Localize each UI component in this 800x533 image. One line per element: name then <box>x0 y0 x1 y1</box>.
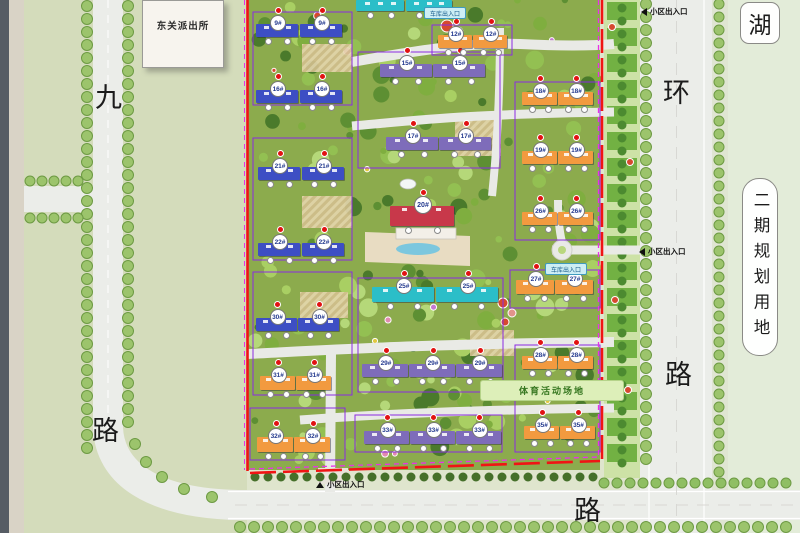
tree-icon <box>641 389 652 400</box>
location-pin-icon <box>321 226 328 233</box>
roof-detail <box>283 439 288 442</box>
tree-icon <box>641 90 652 101</box>
tree-icon <box>714 428 724 438</box>
tree-icon <box>123 53 134 64</box>
tree-icon <box>82 326 93 337</box>
tree-icon <box>468 7 484 23</box>
tree-icon <box>641 415 652 426</box>
tree-icon <box>319 522 330 533</box>
building-number-label: 28# <box>533 347 549 363</box>
unit-number-dot <box>328 104 335 111</box>
roof-detail <box>436 208 441 211</box>
tree-icon <box>716 478 726 488</box>
unit-number-dot <box>421 151 428 158</box>
tree-icon <box>37 213 47 223</box>
tree-icon <box>711 522 722 533</box>
tree-icon <box>714 350 724 360</box>
tree-icon <box>641 155 652 166</box>
roof-detail <box>302 378 307 381</box>
roof-detail <box>286 320 291 323</box>
building-number-label: 30# <box>270 309 286 325</box>
unit-number-dot <box>545 165 552 172</box>
tree-icon <box>690 478 700 488</box>
tree-icon <box>725 522 736 533</box>
tree-icon <box>382 195 393 206</box>
tree-icon <box>485 473 494 482</box>
tree-icon <box>298 122 306 130</box>
tree-icon <box>123 170 134 181</box>
tree-icon <box>456 208 473 225</box>
tree-icon <box>340 319 350 329</box>
tree-icon <box>618 329 627 338</box>
tree-icon <box>123 313 134 324</box>
tree-icon <box>347 522 358 533</box>
tree-icon <box>82 92 93 103</box>
roof-detail <box>266 169 271 172</box>
tree-icon <box>618 69 627 78</box>
building-number-label: 29# <box>378 355 394 371</box>
tree-icon <box>302 72 315 85</box>
tree-icon <box>305 522 316 533</box>
tree-icon <box>524 473 533 482</box>
roof-detail <box>417 366 422 369</box>
road-label-jiu: 九 <box>95 85 122 112</box>
tree-icon <box>82 235 93 246</box>
roof-detail <box>447 289 452 292</box>
tree-icon <box>618 17 627 26</box>
tree-icon <box>641 77 652 88</box>
tree-icon <box>248 334 262 348</box>
tree-icon <box>714 207 724 217</box>
tree-icon <box>714 51 724 61</box>
tree-icon <box>333 522 344 533</box>
tree-icon <box>359 382 371 394</box>
entrance-marker-s: 小区出入口 <box>316 479 365 490</box>
roof-detail <box>476 139 481 142</box>
unit-number-dot <box>319 391 326 398</box>
tree-icon <box>123 40 134 51</box>
tree-icon <box>618 108 627 117</box>
unit-number-dot <box>393 378 400 385</box>
tree-icon <box>641 181 652 192</box>
tree-icon <box>73 176 83 186</box>
tree-icon <box>641 376 652 387</box>
tree-icon <box>651 478 661 488</box>
roof-detail <box>365 2 370 5</box>
roof-detail <box>442 433 447 436</box>
tree-icon <box>625 478 635 488</box>
tree-icon <box>618 95 627 104</box>
roof-detail <box>320 439 325 442</box>
building-number-label: 30# <box>312 309 328 325</box>
tree-icon <box>82 157 93 168</box>
master-plan-map: 9#9#16#16#21#21#22#22#30#30#31#31#32#32#… <box>0 0 800 533</box>
unit-number-dot <box>545 226 552 233</box>
location-pin-icon <box>275 73 282 80</box>
tree-icon <box>497 19 505 27</box>
tree-icon <box>82 287 93 298</box>
roof-detail <box>464 433 469 436</box>
tree-icon <box>714 337 724 347</box>
tree-icon <box>82 352 93 363</box>
tree-icon <box>618 290 627 299</box>
tree-icon <box>408 27 420 39</box>
tree-icon <box>431 522 442 533</box>
tree-icon <box>82 404 93 415</box>
tree-icon <box>61 213 71 223</box>
tree-icon <box>618 433 627 442</box>
building-number-label: 19# <box>569 142 585 158</box>
tree-icon <box>714 285 724 295</box>
tree-icon <box>641 129 652 140</box>
tree-icon <box>123 1 134 12</box>
tree-icon <box>471 198 479 206</box>
building-number-label: 12# <box>448 26 464 42</box>
unit-number-dot <box>330 181 337 188</box>
tree-icon <box>472 473 481 482</box>
tree-icon <box>781 478 791 488</box>
tree-icon <box>714 389 724 399</box>
roof-detail <box>332 245 337 248</box>
tree-icon <box>424 176 433 185</box>
tree-icon <box>618 407 627 416</box>
roof-detail <box>310 169 315 172</box>
tree-icon <box>714 363 724 373</box>
garage-entrance-label-e: 车库出入口 <box>545 263 587 275</box>
tree-icon <box>82 14 93 25</box>
location-pin-icon <box>465 270 472 277</box>
tree-icon <box>537 473 546 482</box>
roof-detail <box>370 366 375 369</box>
roof-detail <box>442 366 447 369</box>
unit-number-dot <box>286 181 293 188</box>
tree-icon <box>641 64 652 75</box>
roof-detail <box>530 428 535 431</box>
tree-icon <box>417 522 428 533</box>
tree-icon <box>501 522 512 533</box>
roof-detail <box>417 289 422 292</box>
tree-icon <box>440 417 452 429</box>
road-label-huan: 环 <box>663 80 690 107</box>
building-number-label: 25# <box>396 278 412 294</box>
location-pin-icon <box>453 18 460 25</box>
tree-icon <box>669 522 680 533</box>
road-label-lu-left: 路 <box>92 418 119 445</box>
tree-icon <box>61 176 71 186</box>
tree-icon <box>618 459 627 468</box>
tree-icon <box>123 300 134 311</box>
tree-icon <box>641 441 652 452</box>
tree-icon <box>82 378 93 389</box>
tree-icon <box>641 142 652 153</box>
tree-icon <box>641 298 652 309</box>
roof-detail <box>300 439 305 442</box>
location-pin-icon <box>401 270 408 277</box>
tree-icon <box>618 368 627 377</box>
tree-icon <box>123 404 134 415</box>
tree-icon <box>641 363 652 374</box>
tree-icon <box>123 209 134 220</box>
unit-number-dot <box>547 440 554 447</box>
unit-number-dot <box>474 151 481 158</box>
building-number-label: 16# <box>314 81 330 97</box>
tree-icon <box>714 194 724 204</box>
entrance-marker-e: 小区出入口 <box>639 246 686 257</box>
tree-icon <box>781 522 792 533</box>
tree-icon <box>123 157 134 168</box>
tree-icon <box>123 391 134 402</box>
tree-icon <box>123 339 134 350</box>
tree-icon <box>612 297 619 304</box>
roof-detail <box>310 245 315 248</box>
location-pin-icon <box>537 195 544 202</box>
unit-number-dot <box>581 370 588 377</box>
tree-icon <box>618 121 627 130</box>
tree-icon <box>82 66 93 77</box>
building-number-label: 33# <box>380 422 396 438</box>
tree-icon <box>599 478 609 488</box>
unit-number-dot <box>545 370 552 377</box>
tree-icon <box>49 176 59 186</box>
building-number-label: 26# <box>533 203 549 219</box>
location-pin-icon <box>575 409 582 416</box>
tree-icon <box>618 43 627 52</box>
tree-icon <box>123 118 134 129</box>
tree-icon <box>641 285 652 296</box>
tree-icon <box>130 439 141 450</box>
roof-detail <box>378 2 383 5</box>
unit-number-dot <box>581 165 588 172</box>
tree-icon <box>638 478 648 488</box>
building-number-label: 28# <box>569 347 585 363</box>
tree-icon <box>618 186 627 195</box>
tree-icon <box>235 522 246 533</box>
phase2-parcel-label: 二期规划用地 <box>742 178 778 356</box>
unit-number-dot <box>283 391 290 398</box>
roof-detail <box>332 169 337 172</box>
tree-icon <box>703 478 713 488</box>
tree-icon <box>433 473 442 482</box>
unit-number-dot <box>284 104 291 111</box>
unit-number-dot <box>445 78 452 85</box>
tree-icon <box>485 279 491 285</box>
tree-icon <box>613 522 624 533</box>
unit-number-dot <box>302 453 309 460</box>
tree-icon <box>207 492 218 503</box>
unit-number-dot <box>283 332 290 339</box>
roof-detail <box>566 428 571 431</box>
tree-icon <box>664 478 674 488</box>
tree-icon <box>618 277 627 286</box>
tree-icon <box>529 522 540 533</box>
arrow-left-icon <box>641 8 647 16</box>
tree-icon <box>82 144 93 155</box>
tree-icon <box>641 38 652 49</box>
location-pin-icon <box>275 7 282 14</box>
tree-icon <box>123 92 134 103</box>
building-number-label: 20# <box>414 196 432 214</box>
tree-icon <box>82 313 93 324</box>
tree-icon <box>641 116 652 127</box>
tree-icon <box>123 79 134 90</box>
roof-detail <box>266 245 271 248</box>
tree-icon <box>714 415 724 425</box>
building-number-label: 32# <box>305 428 321 444</box>
unit-number-dot <box>387 303 394 310</box>
tree-icon <box>618 160 627 169</box>
tree-icon <box>714 103 724 113</box>
tree-icon <box>641 272 652 283</box>
tree-icon <box>82 183 93 194</box>
location-pin-icon <box>274 301 281 308</box>
roof-detail <box>389 66 394 69</box>
tree-icon <box>618 316 627 325</box>
location-pin-icon <box>463 120 470 127</box>
tree-icon <box>618 56 627 65</box>
unit-number-dot <box>545 106 552 113</box>
roof-detail <box>305 320 310 323</box>
tree-icon <box>448 389 460 401</box>
unit-number-dot <box>541 295 548 302</box>
building-number-label: 17# <box>458 128 474 144</box>
roof-detail <box>288 245 293 248</box>
building-number-label: 25# <box>460 278 476 294</box>
tree-icon <box>492 319 501 328</box>
tree-icon <box>291 522 302 533</box>
tree-icon <box>714 116 724 126</box>
tree-icon <box>447 183 461 197</box>
tree-icon <box>375 522 386 533</box>
tree-icon <box>641 259 652 270</box>
unit-number-dot <box>580 295 587 302</box>
tree-icon <box>515 522 526 533</box>
building-number-label: 31# <box>271 367 287 383</box>
tree-icon <box>179 484 190 495</box>
tree-icon <box>123 105 134 116</box>
unit-number-dot <box>328 38 335 45</box>
tree-icon <box>416 270 423 277</box>
tree-icon <box>82 222 93 233</box>
tree-icon <box>272 68 276 72</box>
roof-detail <box>439 2 444 5</box>
location-pin-icon <box>488 18 495 25</box>
tree-icon <box>82 27 93 38</box>
roof-detail <box>402 208 407 211</box>
tree-icon <box>473 522 484 533</box>
unit-number-dot <box>440 378 447 385</box>
location-pin-icon <box>537 134 544 141</box>
unit-number-dot <box>367 12 374 19</box>
tree-icon <box>265 114 280 129</box>
roof-detail <box>414 2 419 5</box>
tree-icon <box>504 138 513 147</box>
tree-icon <box>729 478 739 488</box>
tree-icon <box>625 387 632 394</box>
tree-icon <box>753 522 764 533</box>
building-number-label: 9# <box>314 15 330 31</box>
unit-number-dot <box>307 332 314 339</box>
tree-icon <box>641 428 652 439</box>
tree-icon <box>655 522 666 533</box>
tree-icon <box>550 473 559 482</box>
tree-icon <box>739 522 750 533</box>
tree-icon <box>697 522 708 533</box>
tree-icon <box>618 173 627 182</box>
location-pin-icon <box>383 347 390 354</box>
tree-icon <box>563 473 572 482</box>
unit-number-dot <box>392 78 399 85</box>
tree-icon <box>123 352 134 363</box>
tree-icon <box>373 202 381 210</box>
location-pin-icon <box>404 47 411 54</box>
tree-icon <box>767 522 778 533</box>
location-pin-icon <box>277 150 284 157</box>
tree-icon <box>503 247 518 262</box>
tree-icon <box>618 355 627 364</box>
roof-detail <box>448 139 453 142</box>
tree-icon <box>641 168 652 179</box>
unit-number-dot <box>445 49 452 56</box>
location-pin-icon <box>476 414 483 421</box>
roof-detail <box>417 66 422 69</box>
tree-icon <box>714 233 724 243</box>
unit-number-dot <box>325 332 332 339</box>
unit-number-dot <box>583 440 590 447</box>
tree-icon <box>123 287 134 298</box>
location-pin-icon <box>537 75 544 82</box>
tree-icon <box>543 522 554 533</box>
unit-number-dot <box>486 445 493 452</box>
location-pin-icon <box>316 301 323 308</box>
roof-detail <box>523 282 528 285</box>
tree-icon <box>714 298 724 308</box>
tree-icon <box>37 176 47 186</box>
location-pin-icon <box>539 409 546 416</box>
tree-icon <box>511 473 520 482</box>
roof-detail <box>489 366 494 369</box>
unit-number-dot <box>265 453 272 460</box>
tree-icon <box>264 473 273 482</box>
roof-detail <box>264 26 269 29</box>
tree-icon <box>49 213 59 223</box>
unit-number-dot <box>468 78 475 85</box>
roof-detail <box>528 153 533 156</box>
roof-detail <box>286 26 291 29</box>
road-label-lu-right: 路 <box>665 362 692 389</box>
tree-icon <box>641 311 652 322</box>
tree-icon <box>82 391 93 402</box>
building-number-label: 21# <box>316 158 332 174</box>
roof-detail <box>266 378 271 381</box>
location-pin-icon <box>310 420 317 427</box>
tree-icon <box>452 156 464 168</box>
building-unlabeled[interactable] <box>356 0 404 11</box>
tree-icon <box>251 417 258 424</box>
tree-icon <box>25 176 35 186</box>
tree-icon <box>557 522 568 533</box>
tree-icon <box>589 473 598 482</box>
tree-icon <box>714 142 724 152</box>
unit-number-dot <box>415 78 422 85</box>
tree-icon <box>82 261 93 272</box>
location-pin-icon <box>573 75 580 82</box>
tree-icon <box>618 342 627 351</box>
tree-icon <box>141 457 152 468</box>
tree-icon <box>714 311 724 321</box>
roof-detail <box>528 214 533 217</box>
tree-icon <box>263 522 274 533</box>
tree-icon <box>627 522 638 533</box>
